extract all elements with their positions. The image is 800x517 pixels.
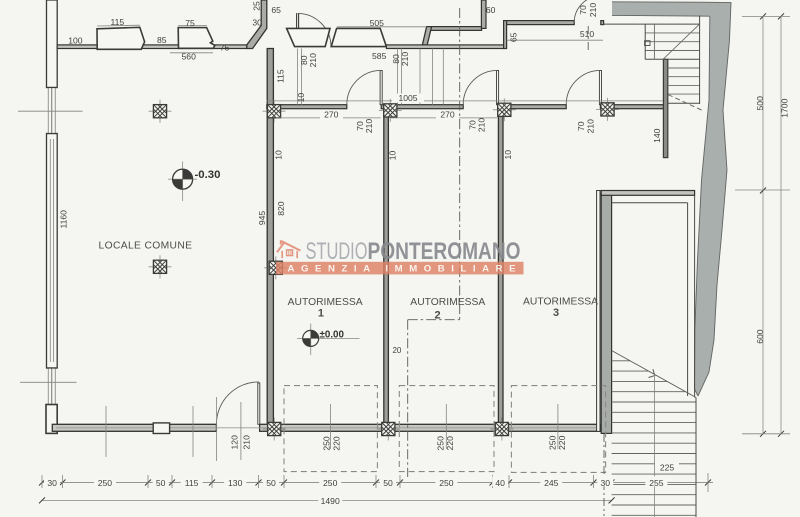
svg-text:LOCALE COMUNE: LOCALE COMUNE [99, 240, 193, 251]
svg-text:250: 250 [435, 436, 445, 451]
svg-text:1700: 1700 [780, 98, 790, 117]
svg-text:1490: 1490 [321, 496, 340, 506]
svg-text:10: 10 [503, 150, 513, 160]
svg-text:945: 945 [257, 211, 267, 226]
svg-text:270: 270 [440, 110, 455, 120]
svg-text:30: 30 [252, 18, 262, 28]
svg-text:60: 60 [486, 5, 496, 15]
svg-text:255: 255 [649, 478, 664, 488]
svg-text:10: 10 [388, 151, 398, 161]
svg-text:560: 560 [182, 52, 197, 62]
svg-text:510: 510 [580, 29, 595, 39]
svg-text:100: 100 [68, 35, 83, 45]
svg-text:210: 210 [364, 119, 374, 134]
svg-text:210: 210 [400, 52, 410, 67]
svg-text:70: 70 [578, 5, 588, 15]
svg-text:210: 210 [585, 119, 595, 134]
svg-text:30: 30 [601, 478, 611, 488]
svg-text:65: 65 [271, 5, 281, 15]
svg-text:50: 50 [266, 478, 276, 488]
svg-text:250: 250 [439, 478, 454, 488]
svg-text:30: 30 [47, 478, 57, 488]
svg-text:130: 130 [228, 478, 243, 488]
svg-text:500: 500 [755, 96, 765, 111]
svg-text:40: 40 [495, 478, 505, 488]
svg-text:25: 25 [252, 1, 262, 11]
svg-text:600: 600 [755, 329, 765, 344]
svg-text:585: 585 [372, 51, 387, 61]
svg-text:250: 250 [547, 435, 557, 450]
svg-text:220: 220 [557, 435, 567, 450]
svg-text:65: 65 [509, 32, 519, 42]
svg-text:AUTORIMESSA: AUTORIMESSA [410, 297, 485, 308]
svg-text:120: 120 [229, 435, 239, 450]
svg-text:210: 210 [241, 435, 251, 450]
svg-text:115: 115 [276, 69, 286, 83]
svg-text:50: 50 [383, 478, 393, 488]
svg-text:1005: 1005 [398, 93, 417, 103]
svg-text:STUDIO: STUDIO [306, 238, 368, 265]
svg-text:505: 505 [370, 18, 385, 28]
svg-text:±0.00: ±0.00 [320, 330, 345, 341]
svg-text:225: 225 [660, 462, 675, 472]
svg-text:210: 210 [477, 118, 487, 133]
svg-text:115: 115 [185, 478, 199, 488]
svg-text:245: 245 [544, 478, 559, 488]
svg-text:250: 250 [98, 478, 113, 488]
svg-text:20: 20 [392, 346, 401, 355]
svg-text:85: 85 [157, 35, 167, 45]
svg-text:140: 140 [652, 128, 662, 143]
svg-text:75: 75 [185, 18, 195, 28]
svg-text:250: 250 [321, 436, 331, 451]
svg-text:115: 115 [110, 17, 124, 27]
svg-text:AUTORIMESSA: AUTORIMESSA [288, 297, 363, 308]
svg-text:10: 10 [296, 93, 306, 103]
svg-text:1: 1 [318, 308, 324, 320]
svg-text:1160: 1160 [58, 210, 68, 229]
svg-text:210: 210 [588, 3, 598, 18]
svg-text:PONTEROMANO: PONTEROMANO [368, 238, 521, 265]
svg-text:270: 270 [324, 110, 339, 120]
svg-text:220: 220 [331, 436, 341, 451]
svg-text:AUTORIMESSA: AUTORIMESSA [523, 297, 598, 308]
svg-text:210: 210 [308, 53, 318, 68]
svg-text:3: 3 [553, 307, 559, 319]
svg-text:820: 820 [276, 201, 286, 216]
svg-text:75: 75 [220, 42, 230, 52]
svg-text:250: 250 [323, 478, 338, 488]
svg-text:2: 2 [434, 310, 440, 322]
svg-text:10: 10 [274, 150, 284, 160]
svg-text:220: 220 [445, 436, 455, 451]
svg-text:-0.30: -0.30 [195, 169, 221, 181]
svg-text:50: 50 [156, 478, 166, 488]
